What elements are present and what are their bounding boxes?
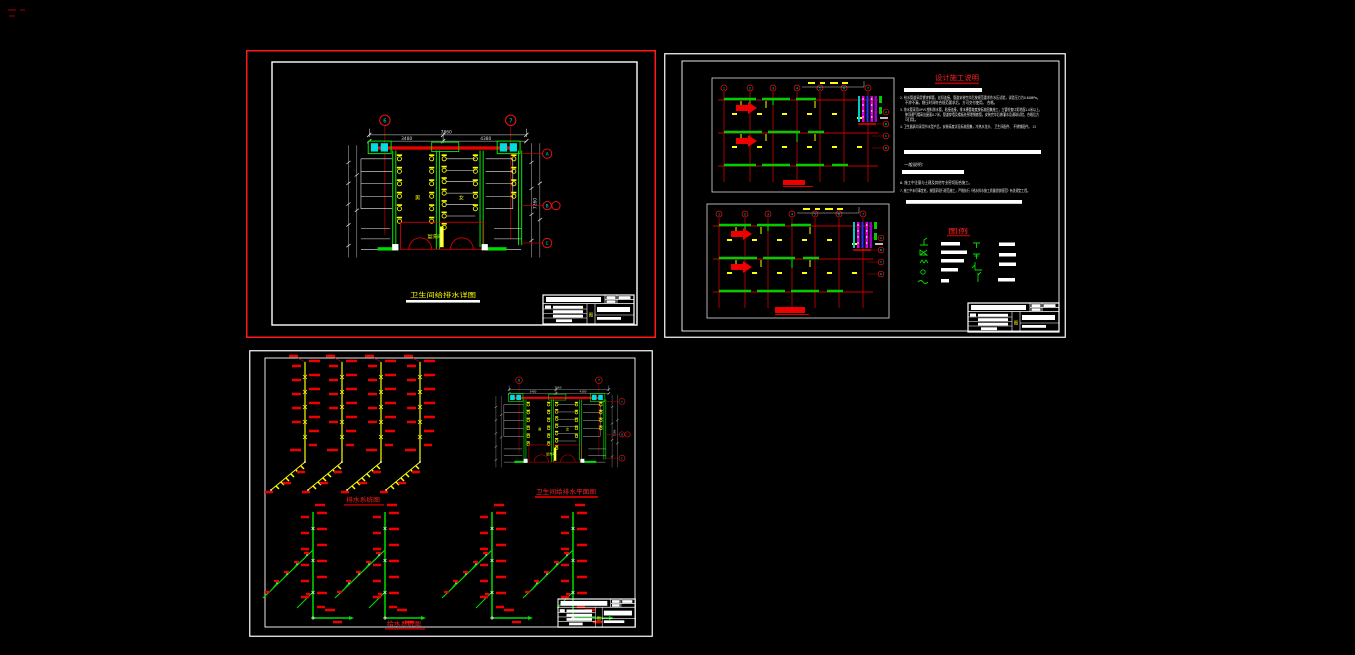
svg-text:一般说明：: 一般说明：	[904, 162, 926, 167]
faucet-icon	[920, 238, 928, 245]
toilet-plan-large[interactable]	[346, 115, 560, 257]
legend-label-bar	[941, 279, 949, 283]
notes-title-underline	[935, 83, 979, 85]
construction-notes: 设计施工说明 2. 给水管道采用镀锌钢管，丝扣连接，管道安装完毕后按规范要求作水…	[900, 73, 1042, 204]
sheet-toilet-detail[interactable]: 卫生间给排水详图	[246, 50, 656, 338]
shower-icon	[920, 260, 928, 263]
drawing-title: 卫生间给排水详图	[406, 290, 480, 303]
waste-riser-title: 排水系统图	[344, 496, 384, 506]
toilet-plan-small[interactable]	[495, 377, 631, 467]
legend-label-bar	[999, 243, 1015, 247]
legend-label-bar	[941, 242, 960, 246]
floor-plan-lower[interactable]	[707, 204, 889, 318]
cleanout-icon	[973, 243, 980, 248]
check-port-icon	[972, 262, 982, 270]
plan-title-underline	[775, 314, 809, 315]
waste-risers[interactable]	[265, 356, 435, 492]
vent-cap-icon	[978, 272, 981, 282]
svg-text:4. 卫生器具均采用节水型产品，安装高度详见标准图集，冷热水: 4. 卫生器具均采用节水型产品，安装高度详见标准图集，冷热水龙头、 卫生间配件、…	[900, 124, 1036, 129]
svg-text:可用。: 可用。	[905, 117, 919, 122]
sheet-system-diagrams[interactable]: 排水系统图 卫生间给排水平面图 给水系统图	[249, 350, 653, 637]
svg-text:卫生间给排水详图: 卫生间给排水详图	[410, 290, 476, 299]
svg-text:伸顶通气帽高出屋面0.7米，管道穿墙及楼板处预埋钢套管，安装: 伸顶通气帽高出屋面0.7米，管道穿墙及楼板处预埋钢套管，安装完毕后做灌水及通球试…	[905, 112, 1039, 117]
valve-icon	[920, 250, 927, 255]
title-block	[968, 303, 1059, 332]
notes-bar	[904, 88, 982, 92]
plan-title-highlight	[775, 307, 805, 313]
plan-title-highlight	[783, 180, 805, 185]
sheet-plans-notes[interactable]: 设计施工说明 2. 给水管道采用镀锌钢管，丝扣连接，管道安装完毕后按规范要求作水…	[664, 53, 1066, 338]
legend-title-underline	[947, 235, 970, 237]
legend-label-bar	[941, 259, 964, 263]
trap-icon	[918, 281, 928, 284]
legend-title: 图例	[948, 226, 968, 235]
cad-workspace: 6 7 7860 3480 4380 7260	[0, 0, 1355, 655]
legend-label-bar	[998, 278, 1015, 282]
notes-bar	[906, 200, 1022, 204]
legend-label-bar	[999, 263, 1016, 267]
legend: 图例	[918, 226, 1016, 284]
plan-title-underline	[783, 186, 813, 187]
check-valve-icon	[921, 270, 925, 274]
svg-text:7. 施工中未尽事宜处，按国家现行规范施工，严格执行《给水排: 7. 施工中未尽事宜处，按国家现行规范施工，严格执行《给水排水施工质量验收规范》…	[900, 188, 1030, 193]
floor-drain-icon	[973, 254, 980, 259]
legend-label-bar	[941, 251, 967, 255]
supply-riser-title: 给水系统图	[385, 620, 425, 630]
svg-text:不渗不漏，稳压时间符合规范要求后，方可交付使用。 合格。: 不渗不漏，稳压时间符合规范要求后，方可交付使用。 合格。	[905, 100, 997, 105]
svg-text:6. 施工中注意与土建及其他专业密切配合施工。: 6. 施工中注意与土建及其他专业密切配合施工。	[900, 180, 972, 185]
plan-title: 卫生间给排水平面图	[535, 488, 598, 498]
notes-bar	[904, 150, 1041, 154]
svg-text:卫生间给排水平面图: 卫生间给排水平面图	[536, 488, 596, 496]
stray-artifact	[0, 0, 60, 30]
sheet-border	[272, 62, 637, 325]
legend-label-bar	[941, 268, 958, 272]
floor-plan-upper[interactable]	[712, 78, 894, 192]
title-block	[543, 295, 634, 324]
svg-text:给水系统图: 给水系统图	[387, 620, 421, 628]
notes-bar	[902, 170, 964, 174]
notes-title: 设计施工说明	[935, 73, 979, 82]
legend-label-bar	[999, 253, 1016, 257]
svg-text:排水系统图: 排水系统图	[346, 496, 380, 504]
